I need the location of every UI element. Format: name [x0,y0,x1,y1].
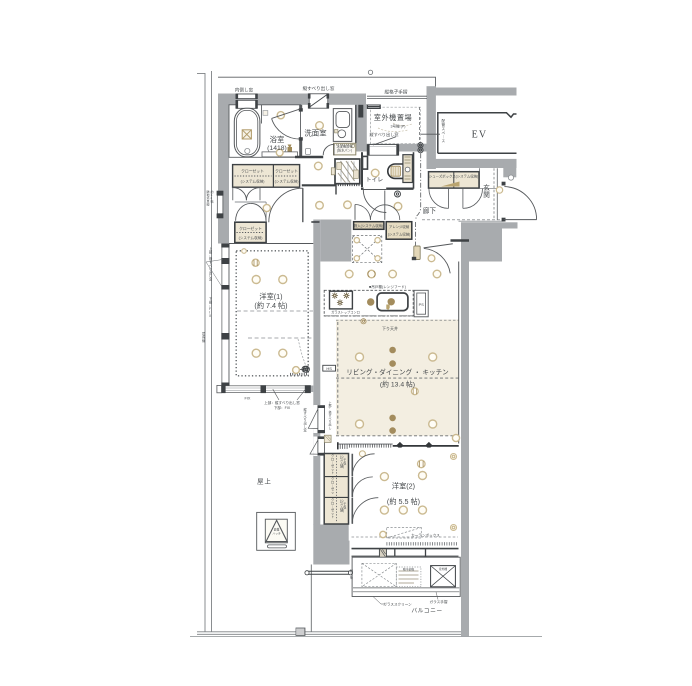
svg-text:隣地境界線: 隣地境界線 [207,189,210,206]
svg-text:洋室(1): 洋室(1) [259,292,282,301]
svg-text:洋室(2): 洋室(2) [392,482,415,491]
svg-text:下部：FIX: 下部：FIX [274,405,291,410]
svg-text:アレンジ収納: アレンジ収納 [389,224,410,229]
svg-text:廊下: 廊下 [423,206,437,215]
svg-text:縦格子手摺: 縦格子手摺 [385,89,408,96]
svg-text:浴室: 浴室 [270,135,285,144]
svg-text:洗面室: 洗面室 [304,129,326,138]
svg-text:上部：縦すべり出し窓: 上部：縦すべり出し窓 [264,400,300,405]
svg-text:室外機: 室外機 [439,567,448,571]
svg-text:FIX: FIX [245,397,251,401]
svg-text:ガラス手摺: ガラス手摺 [430,599,448,604]
svg-text:(システム収納): (システム収納) [241,179,265,184]
svg-text:屋上: 屋上 [257,477,272,486]
svg-text:クローゼット: クローゼット [241,169,264,174]
svg-text:■吊戸棚(レンジフード): ■吊戸棚(レンジフード) [369,284,406,289]
svg-text:シューズボックス(システム収納): シューズボックス(システム収納) [429,174,478,179]
svg-text:3号機 (P): 3号機 (P) [391,124,406,129]
svg-text:バルコニー: バルコニー [411,608,442,615]
svg-text:内倒し窓: 内倒し窓 [235,87,254,94]
svg-text:下り天井: 下り天井 [382,325,398,331]
svg-text:隔て板: 隔て板 [350,568,353,579]
svg-text:物入(システム収納): 物入(システム収納) [354,223,383,228]
svg-text:(システム収納): (システム収納) [239,235,263,240]
svg-text:上部：横すべり出し: 上部：横すべり出し [329,400,332,430]
svg-text:PS: PS [419,303,425,307]
svg-text:(約 7.4 帖): (約 7.4 帖) [254,301,287,310]
svg-text:縦すべり出し窓: 縦すべり出し窓 [303,85,335,92]
svg-text:玄関: 玄関 [483,183,490,199]
svg-text:クローゼット: クローゼット [275,169,298,174]
svg-text:物干金物: 物干金物 [403,568,414,572]
svg-text:室外機置場: 室外機置場 [374,113,412,122]
svg-text:(システム収納): (システム収納) [388,232,411,237]
svg-text:ハッチ: ハッチ [272,532,281,536]
svg-text:ガラススクリーン: ガラススクリーン [383,602,412,607]
svg-text:(約 5.5 帖): (約 5.5 帖) [387,497,420,506]
svg-text:ガラストップコンロ: ガラストップコンロ [331,310,360,315]
svg-text:HS: HS [326,366,332,371]
svg-text:(1418): (1418) [267,145,287,152]
svg-text:リビング・ダイニング ・ キッチン: リビング・ダイニング ・ キッチン [346,368,449,377]
svg-text:縦すべり出し窓: 縦すべり出し窓 [369,131,398,138]
svg-text:EV: EV [472,130,488,141]
svg-text:(防水パン): (防水パン) [337,148,352,153]
svg-text:クローゼット: クローゼット [239,226,262,231]
svg-text:(システム収納): (システム収納) [275,179,299,184]
svg-text:カーテンボックス: カーテンボックス [411,533,440,538]
svg-text:(約 13.4 帖): (約 13.4 帖) [380,380,415,389]
svg-text:配管スペ｜ス: 配管スペ｜ス [442,118,446,143]
svg-text:トイレ: トイレ [366,178,384,184]
